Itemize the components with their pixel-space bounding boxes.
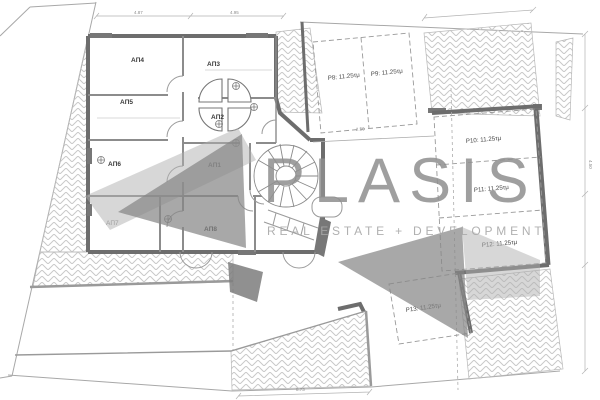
parking-label-p11: P11: 11.25τμ [474, 184, 510, 194]
parking-label-p12: P12: 11.25τμ [482, 239, 518, 249]
room-label-ap4: ΑΠ4 [131, 57, 144, 64]
room-label-ap8: ΑΠ8 [204, 226, 217, 233]
room-label-ap3: ΑΠ3 [207, 61, 220, 68]
hatch-top-right [424, 23, 540, 116]
room-label-ap1: ΑΠ1 [208, 162, 221, 169]
parking-label-p10: P10: 11.25τμ [466, 135, 502, 145]
floor-plan-drawing: 4.87 4.95 2.50 4.50 8.73 ΑΠ4 ΑΠ3 ΑΠ5 ΑΠ2… [0, 0, 600, 400]
dim-stalls: 2.50 [356, 126, 366, 132]
entry-ramp [264, 210, 318, 240]
dim-top-right: 4.95 [230, 10, 239, 15]
hatch-bottom-right [459, 269, 563, 379]
pinwheel-doors [199, 79, 251, 131]
spiral-staircase [254, 144, 318, 207]
hatch-far-right [556, 38, 573, 120]
hatch-areas [33, 23, 573, 390]
parking-label-p9: P9: 11.25τμ [370, 68, 403, 78]
hatch-ramp [231, 311, 371, 390]
room-labels: ΑΠ4 ΑΠ3 ΑΠ5 ΑΠ2 ΑΠ6 ΑΠ1 ΑΠ7 ΑΠ8 [106, 57, 224, 233]
room-label-ap6: ΑΠ6 [108, 161, 121, 168]
dim-right: 4.50 [588, 160, 593, 169]
room-label-ap5: ΑΠ5 [120, 99, 133, 106]
parking-label-p13: P13: 11.25τμ [405, 302, 442, 314]
room-label-ap2: ΑΠ2 [211, 114, 224, 121]
dim-top-left: 4.87 [134, 10, 143, 15]
room-label-ap7: ΑΠ7 [106, 220, 119, 227]
floor-plan-svg: 4.87 4.95 2.50 4.50 8.73 ΑΠ4 ΑΠ3 ΑΠ5 ΑΠ2… [0, 0, 600, 400]
entry-canopy [312, 197, 342, 217]
hatch-left-strip [40, 36, 88, 252]
parking-label-p8: P8: 11.25τμ [327, 72, 360, 82]
stall-p8-p9 [313, 33, 417, 133]
dim-bottom: 8.73 [296, 387, 305, 392]
